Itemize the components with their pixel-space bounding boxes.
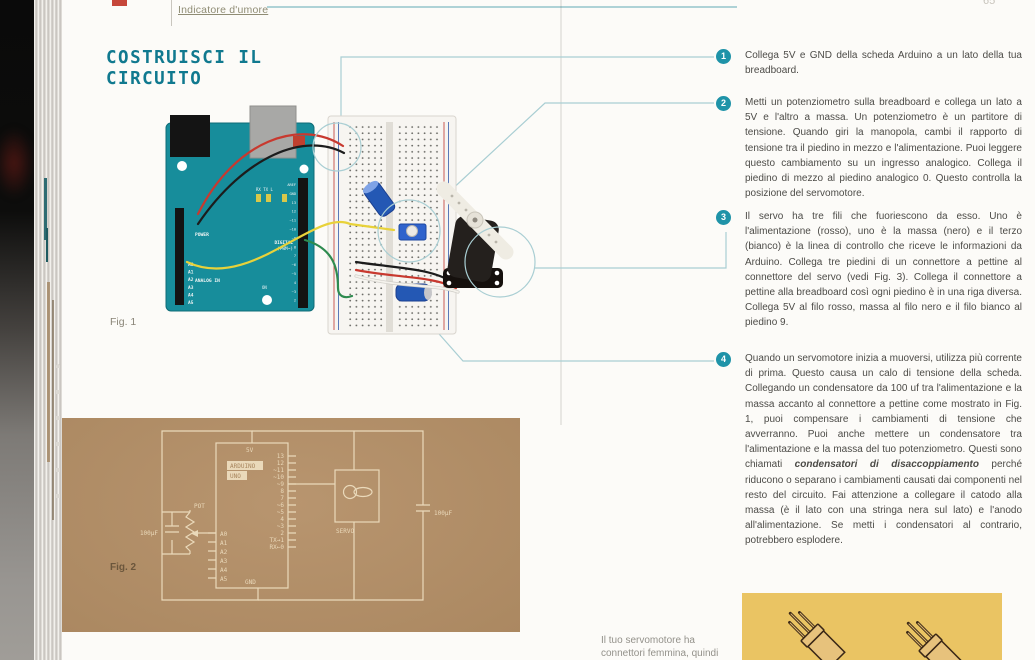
- fig1-illustration: RX TX L POWER ANALOG IN DIGITAL (PWM~) O…: [140, 30, 740, 400]
- svg-text:~6: ~6: [292, 263, 296, 267]
- step-3-badge: 3: [716, 210, 731, 225]
- power-label: POWER: [195, 232, 209, 238]
- svg-text:2: 2: [280, 530, 284, 537]
- step-2-number: 2: [721, 98, 726, 108]
- power-analog-header: [175, 208, 184, 305]
- svg-text:A2: A2: [220, 549, 228, 556]
- page-edge-sliver: [52, 300, 54, 520]
- step-2: 2 Metti un potenziometro sulla breadboar…: [716, 95, 1022, 201]
- servo-label: SERVO: [336, 528, 354, 535]
- pin-header-illustration: [742, 593, 1002, 660]
- svg-text:A4: A4: [188, 292, 194, 298]
- section-link[interactable]: Indicatore d'umore: [178, 4, 268, 16]
- step-1-number: 1: [721, 51, 726, 61]
- page-edge-sliver: [46, 228, 48, 262]
- svg-text:A4: A4: [220, 567, 228, 574]
- servo-caption-line2: connettori femmina, quindi: [601, 647, 751, 660]
- cap-left-label: 100μF: [140, 530, 158, 537]
- pin-gnd: GND: [245, 579, 256, 586]
- step-4-number: 4: [721, 354, 726, 364]
- binding-dots: [56, 364, 60, 516]
- schematic-right-pins: 13 12 ~11 ~10 ~9 8 7 ~6 ~5 4 ~3 2 TX→1 R…: [270, 453, 285, 551]
- fig1-label: Fig. 1: [110, 316, 136, 328]
- svg-text:13: 13: [292, 201, 296, 205]
- svg-text:~9: ~9: [277, 481, 285, 488]
- cap-right-label: 100μF: [434, 510, 452, 517]
- svg-text:~11: ~11: [290, 219, 297, 223]
- step-4: 4 Quando un servomotore inizia a muovers…: [716, 351, 1022, 549]
- pot-label: POT: [194, 503, 205, 510]
- svg-text:~10: ~10: [290, 228, 297, 232]
- breadboard-groove: [386, 122, 393, 332]
- board-name-1: ARDUINO: [230, 463, 256, 470]
- svg-text:12: 12: [292, 210, 296, 214]
- svg-text:7: 7: [280, 495, 284, 502]
- svg-text:~5: ~5: [277, 509, 285, 516]
- svg-text:A3: A3: [188, 285, 194, 291]
- servo-caption: Il tuo servomotore ha connettori femmina…: [601, 634, 751, 660]
- usb-port: [170, 115, 210, 157]
- analog-in-label: ANALOG IN: [195, 278, 220, 284]
- svg-text:A2: A2: [188, 277, 194, 283]
- svg-text:A1: A1: [220, 540, 228, 547]
- svg-text:2: 2: [294, 299, 296, 303]
- fig2-schematic-panel: ARDUINO UNO 5V GND POT 100μF 100μF SERVO…: [62, 418, 520, 632]
- arduino-board: RX TX L POWER ANALOG IN DIGITAL (PWM~) O…: [166, 106, 314, 311]
- step-4-text-before: Quando un servomotore inizia a muoversi,…: [745, 353, 1022, 470]
- pin-header-1: [782, 605, 846, 660]
- step-3: 3 Il servo ha tre fili che fuoriescono d…: [716, 209, 1022, 331]
- step-4-text-bold: condensatori di disaccoppiamento: [795, 459, 979, 470]
- servo-caption-line1: Il tuo servomotore ha: [601, 634, 751, 647]
- fig2-label: Fig. 2: [110, 562, 136, 573]
- led-labels: RX TX L: [256, 187, 273, 192]
- svg-text:A3: A3: [220, 558, 228, 565]
- step-2-badge: 2: [716, 96, 731, 111]
- step-1: 1 Collega 5V e GND della scheda Arduino …: [716, 48, 1022, 78]
- svg-text:RX←0: RX←0: [270, 544, 285, 551]
- svg-text:4: 4: [280, 516, 284, 523]
- step-1-text: Collega 5V e GND della scheda Arduino a …: [745, 48, 1022, 78]
- step-4-text: Quando un servomotore inizia a muoversi,…: [745, 351, 1022, 549]
- red-tab-marker: [112, 0, 127, 6]
- svg-text:A0: A0: [220, 531, 228, 538]
- background-blur: [0, 128, 34, 198]
- svg-text:~5: ~5: [292, 272, 296, 276]
- step-2-text: Metti un potenziometro sulla breadboard …: [745, 95, 1022, 201]
- pin-5v: 5V: [246, 447, 254, 454]
- svg-text:8: 8: [294, 245, 296, 249]
- step-3-number: 3: [721, 212, 726, 222]
- on-label: ON: [262, 285, 267, 290]
- svg-text:7: 7: [294, 254, 296, 258]
- step-4-badge: 4: [716, 352, 731, 367]
- step-1-badge: 1: [716, 49, 731, 64]
- schematic-left-pins: A0 A1 A2 A3 A4 A5: [220, 531, 228, 583]
- fig3-connector-panel: [742, 593, 1002, 660]
- svg-text:~3: ~3: [292, 290, 296, 294]
- book-page-photo: Indicatore d'umore 65 COSTRUISCI IL CIRC…: [0, 0, 1035, 660]
- page-edge-sliver: [47, 282, 50, 462]
- page-number: 65: [983, 0, 995, 7]
- header-divider: [171, 0, 172, 26]
- board-name-2: UNO: [230, 473, 241, 480]
- svg-text:~6: ~6: [277, 502, 285, 509]
- fig2-schematic: ARDUINO UNO 5V GND POT 100μF 100μF SERVO…: [62, 418, 520, 632]
- potentiometer: [399, 224, 426, 240]
- svg-text:8: 8: [280, 488, 284, 495]
- svg-text:12: 12: [277, 460, 285, 467]
- pin-header-2: [900, 615, 964, 660]
- svg-text:A5: A5: [220, 576, 228, 583]
- svg-text:~10: ~10: [273, 474, 284, 481]
- step-3-text: Il servo ha tre fili che fuoriescono da …: [745, 209, 1022, 331]
- svg-text:TX→1: TX→1: [270, 537, 285, 544]
- svg-text:AREF: AREF: [287, 183, 296, 187]
- svg-text:~3: ~3: [277, 523, 285, 530]
- svg-text:GND: GND: [290, 192, 297, 196]
- svg-text:A5: A5: [188, 300, 194, 306]
- svg-text:~11: ~11: [273, 467, 284, 474]
- svg-text:13: 13: [277, 453, 285, 460]
- digital-header: [298, 178, 308, 308]
- header-rule: [267, 6, 737, 8]
- step-4-text-after: perché riducono o separano i cambiamenti…: [745, 459, 1022, 546]
- svg-text:4: 4: [294, 281, 296, 285]
- svg-text:A1: A1: [188, 270, 194, 276]
- breadboard: [328, 116, 456, 334]
